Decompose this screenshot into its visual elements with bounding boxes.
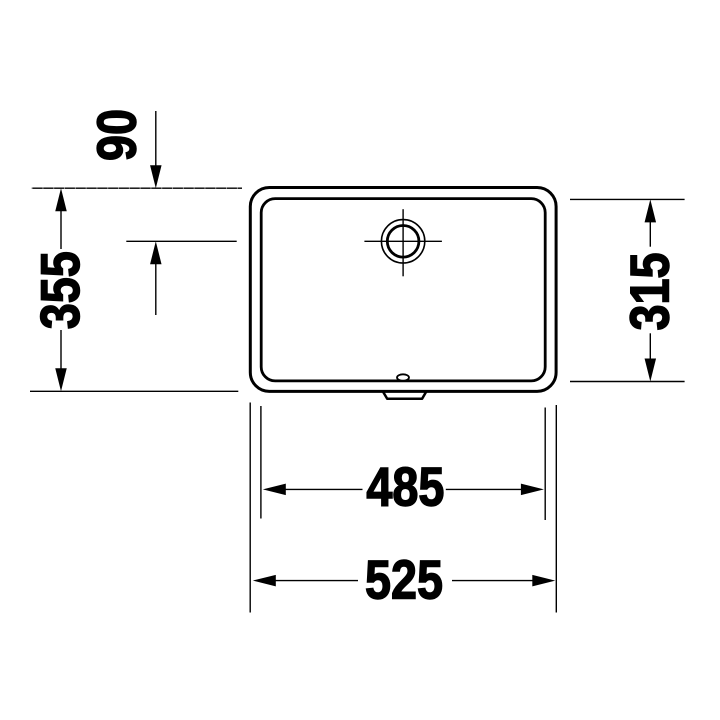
svg-text:315: 315 xyxy=(619,253,680,331)
svg-text:90: 90 xyxy=(86,109,147,161)
svg-text:355: 355 xyxy=(29,251,90,329)
svg-text:485: 485 xyxy=(366,456,444,517)
svg-text:525: 525 xyxy=(365,549,443,610)
